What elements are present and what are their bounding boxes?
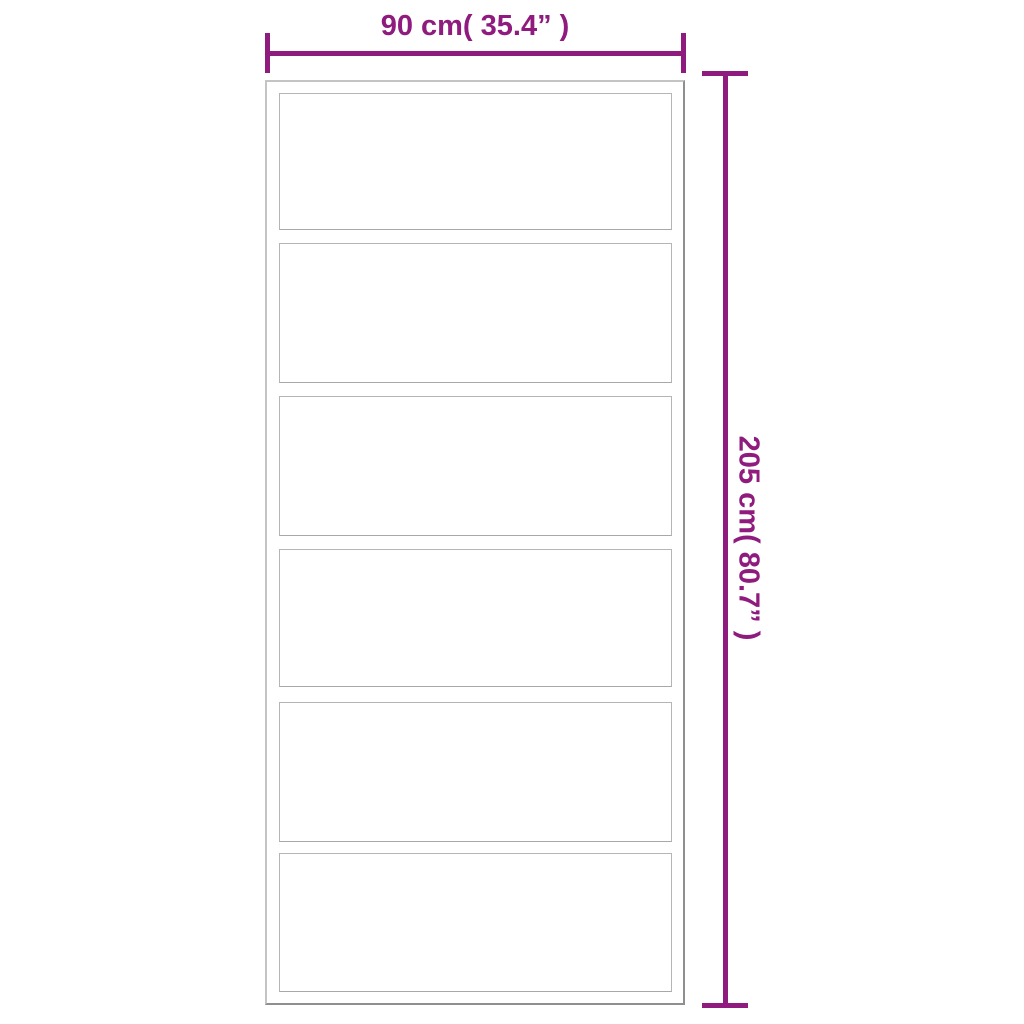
door-panel xyxy=(279,93,672,230)
width-dimension-tick-right xyxy=(681,33,686,73)
width-dimension-tick-left xyxy=(265,33,270,73)
door-panel xyxy=(279,549,672,687)
door-panel xyxy=(279,702,672,842)
product-dimension-diagram: 90 cm( 35.4” ) 205 cm( 80.7” ) xyxy=(0,0,1024,1024)
door-panel xyxy=(279,396,672,536)
door-panel xyxy=(279,853,672,992)
width-dimension-label: 90 cm( 35.4” ) xyxy=(265,10,685,43)
door-panel xyxy=(279,243,672,383)
height-dimension-label: 205 cm( 80.7” ) xyxy=(732,436,765,641)
width-dimension-line xyxy=(265,51,686,56)
height-dimension-line xyxy=(723,73,728,1006)
height-dimension-tick-top xyxy=(702,71,748,76)
door-frame xyxy=(265,80,685,1005)
height-dimension-tick-bottom xyxy=(702,1003,748,1008)
